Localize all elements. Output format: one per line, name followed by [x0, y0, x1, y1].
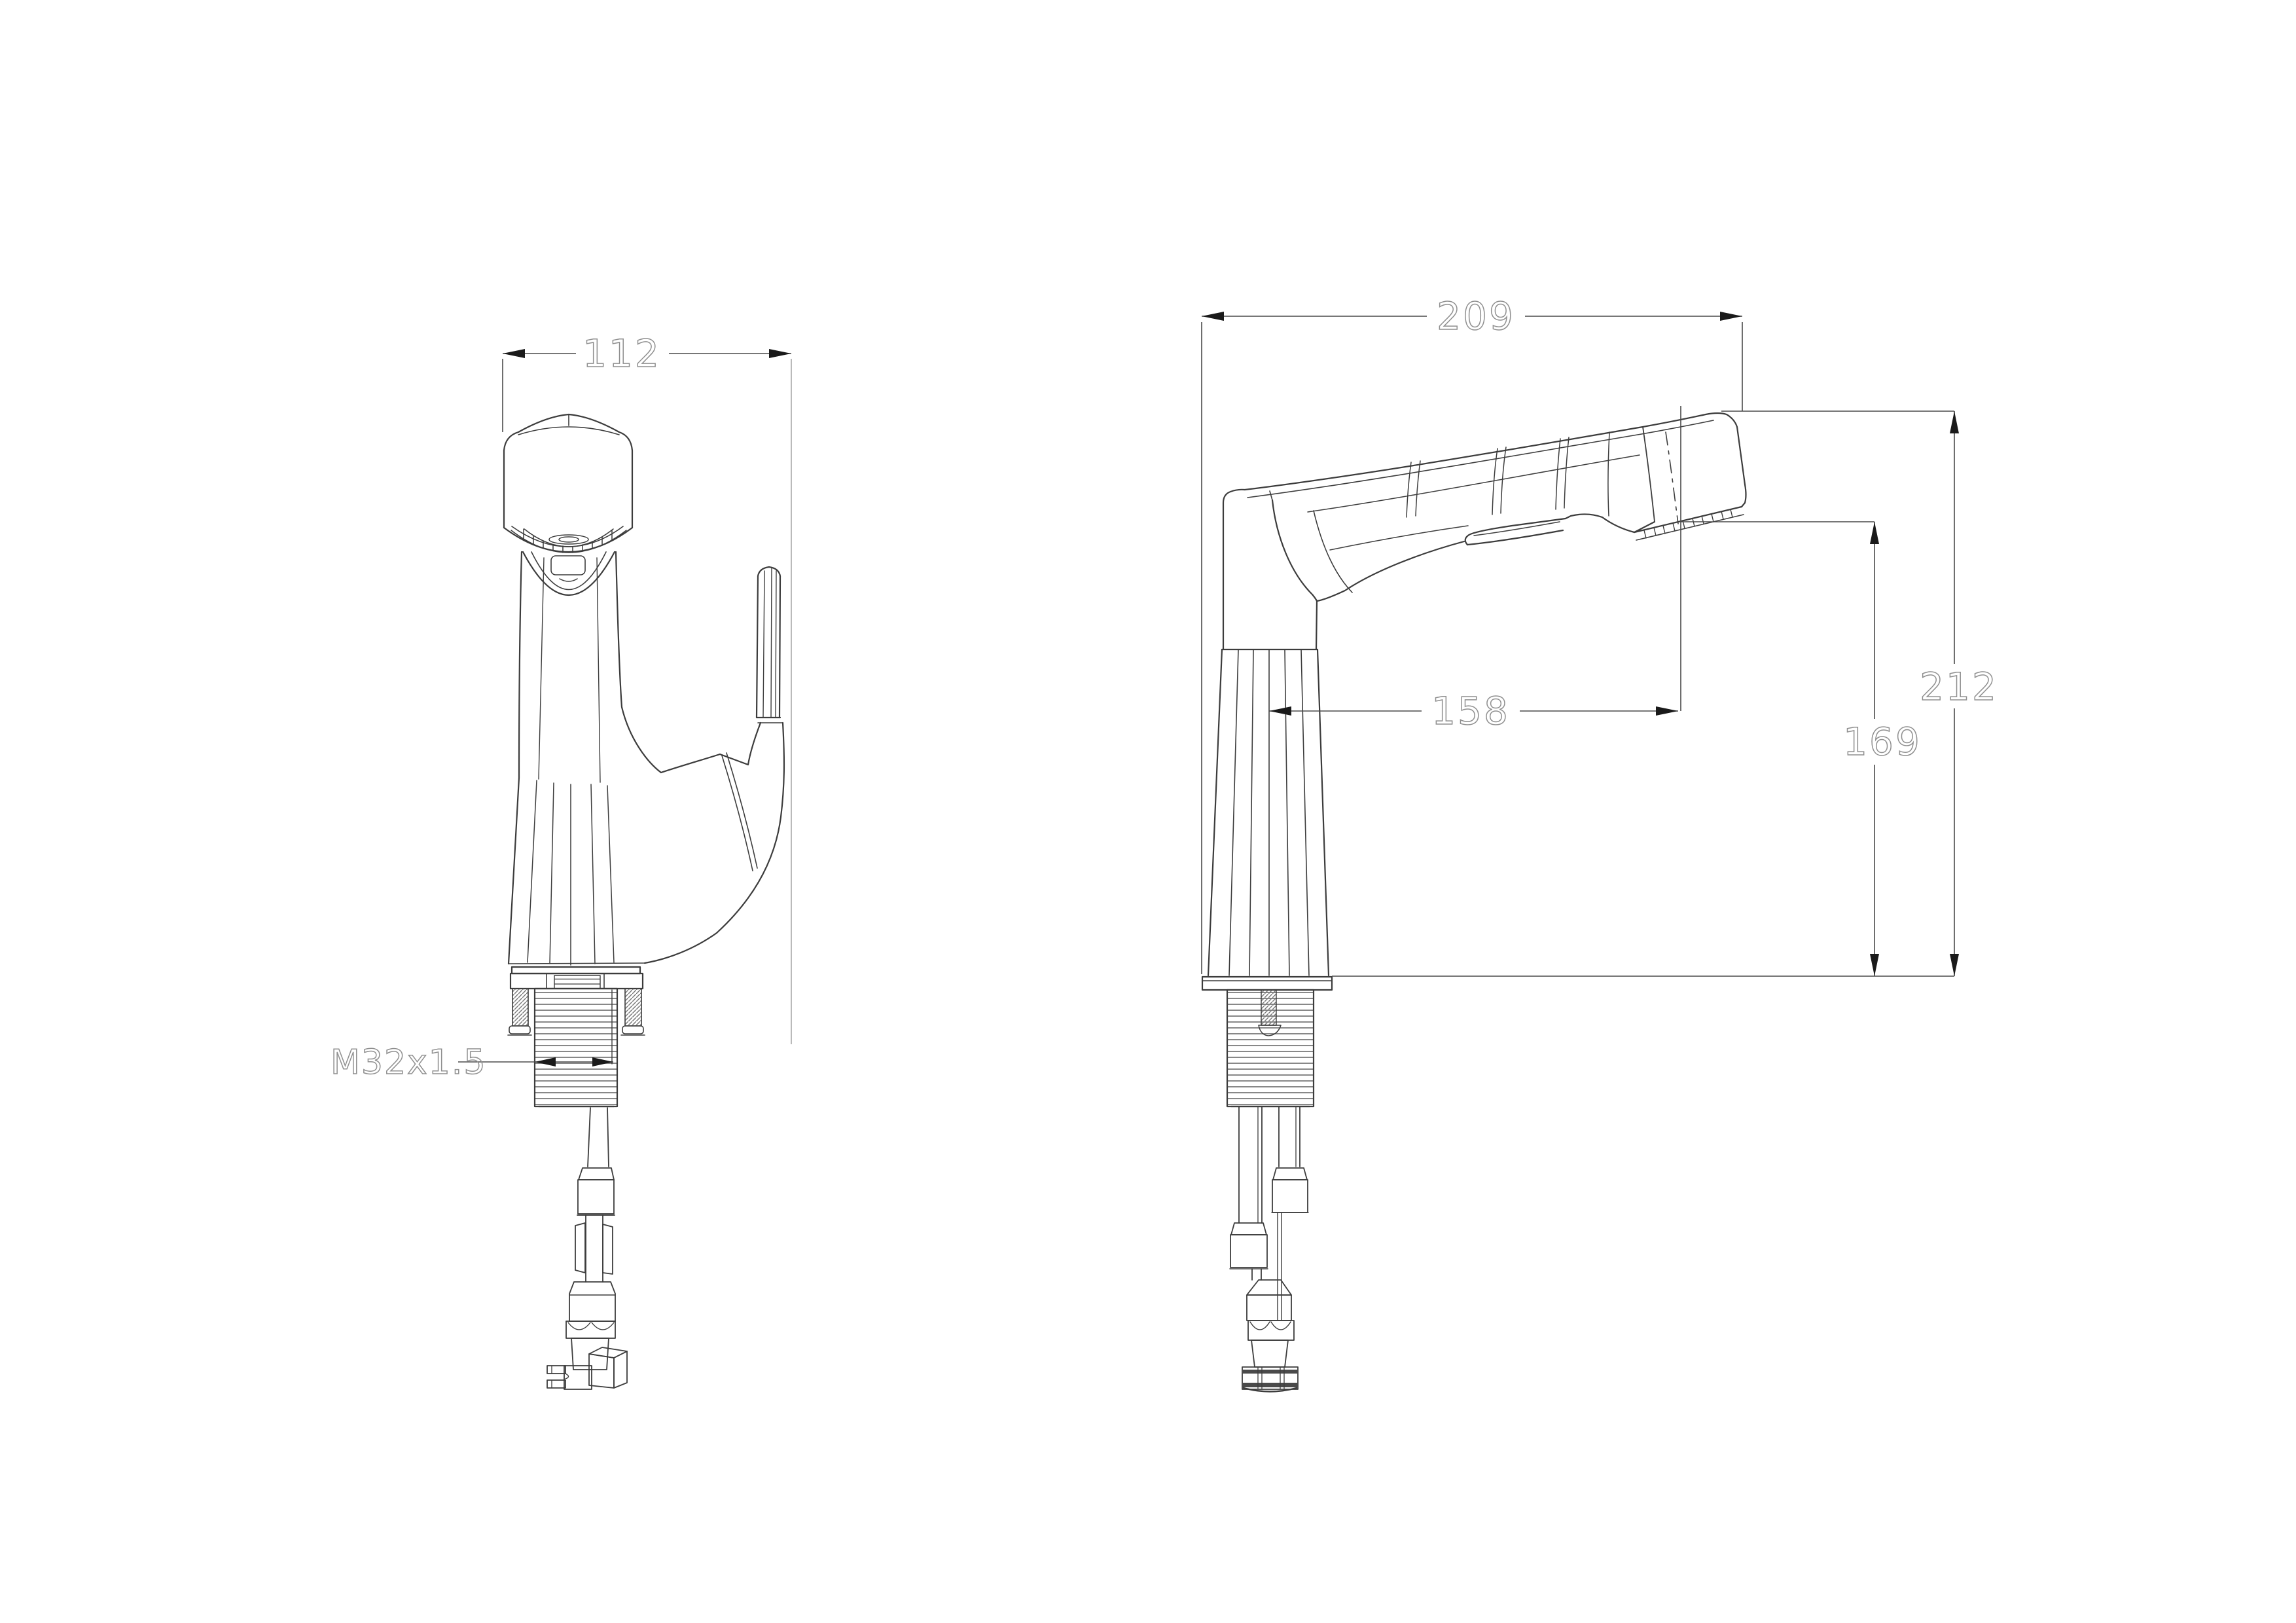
faucet-technical-drawing: 112 209 158 169 212 M32x1.5	[0, 0, 2296, 1623]
dim-label-spout-reach: 158	[1431, 689, 1510, 733]
front-threaded-shank	[535, 989, 617, 1106]
dim-label-thread-spec: M32x1.5	[331, 1043, 487, 1082]
paper	[0, 0, 2296, 1623]
dim-label-overall-height: 212	[1920, 665, 1998, 709]
dim-label-spout-height: 169	[1843, 720, 1922, 764]
pull-rod-hatched	[1261, 990, 1276, 1025]
dim-label-side-length: 209	[1437, 294, 1515, 338]
drawing-sheet: 112 209 158 169 212 M32x1.5	[0, 0, 2296, 1623]
side-threaded-shank	[1227, 990, 1314, 1106]
dim-label-front-width: 112	[583, 331, 661, 376]
